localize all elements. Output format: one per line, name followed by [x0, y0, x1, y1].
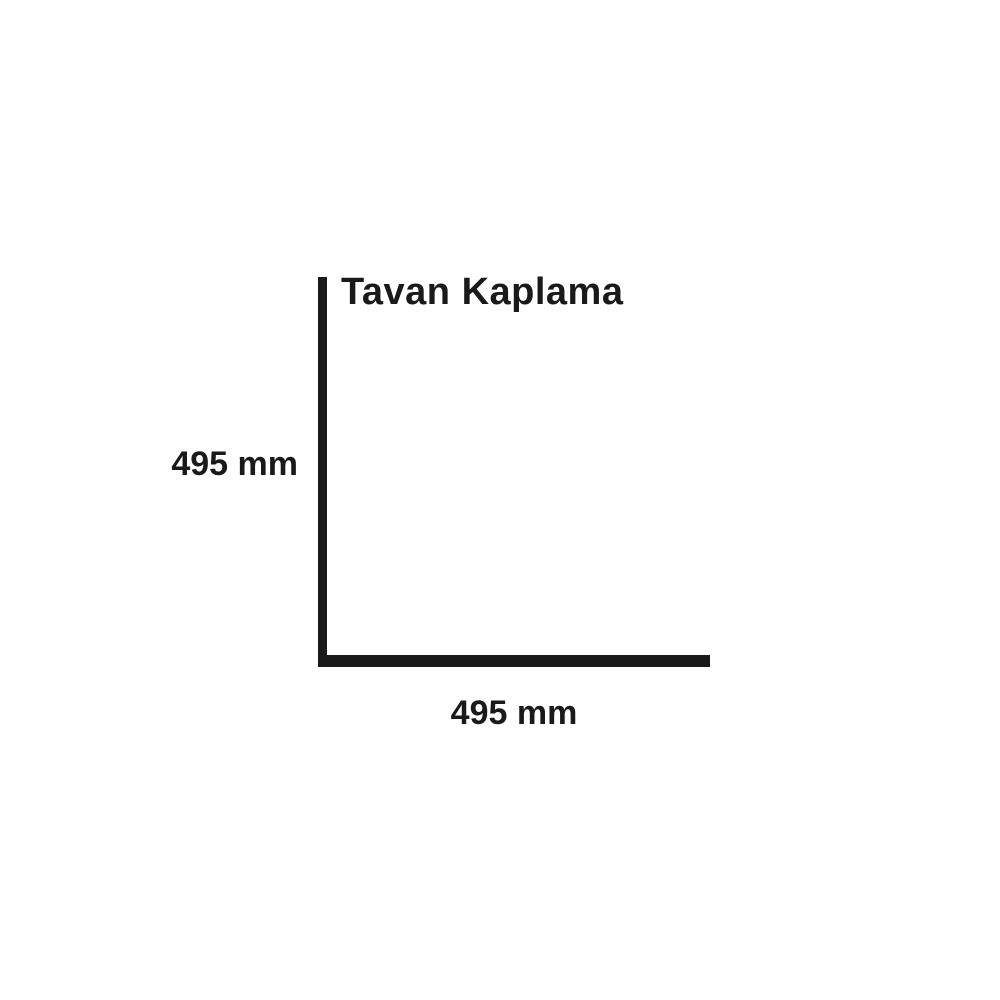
height-dimension-label: 495 mm	[110, 447, 298, 481]
horizontal-dimension-line	[318, 655, 710, 667]
width-dimension-label: 495 mm	[318, 696, 710, 730]
vertical-dimension-line	[318, 277, 327, 667]
dimension-diagram: Tavan Kaplama 495 mm 495 mm	[0, 0, 1000, 1000]
diagram-title: Tavan Kaplama	[341, 272, 623, 314]
